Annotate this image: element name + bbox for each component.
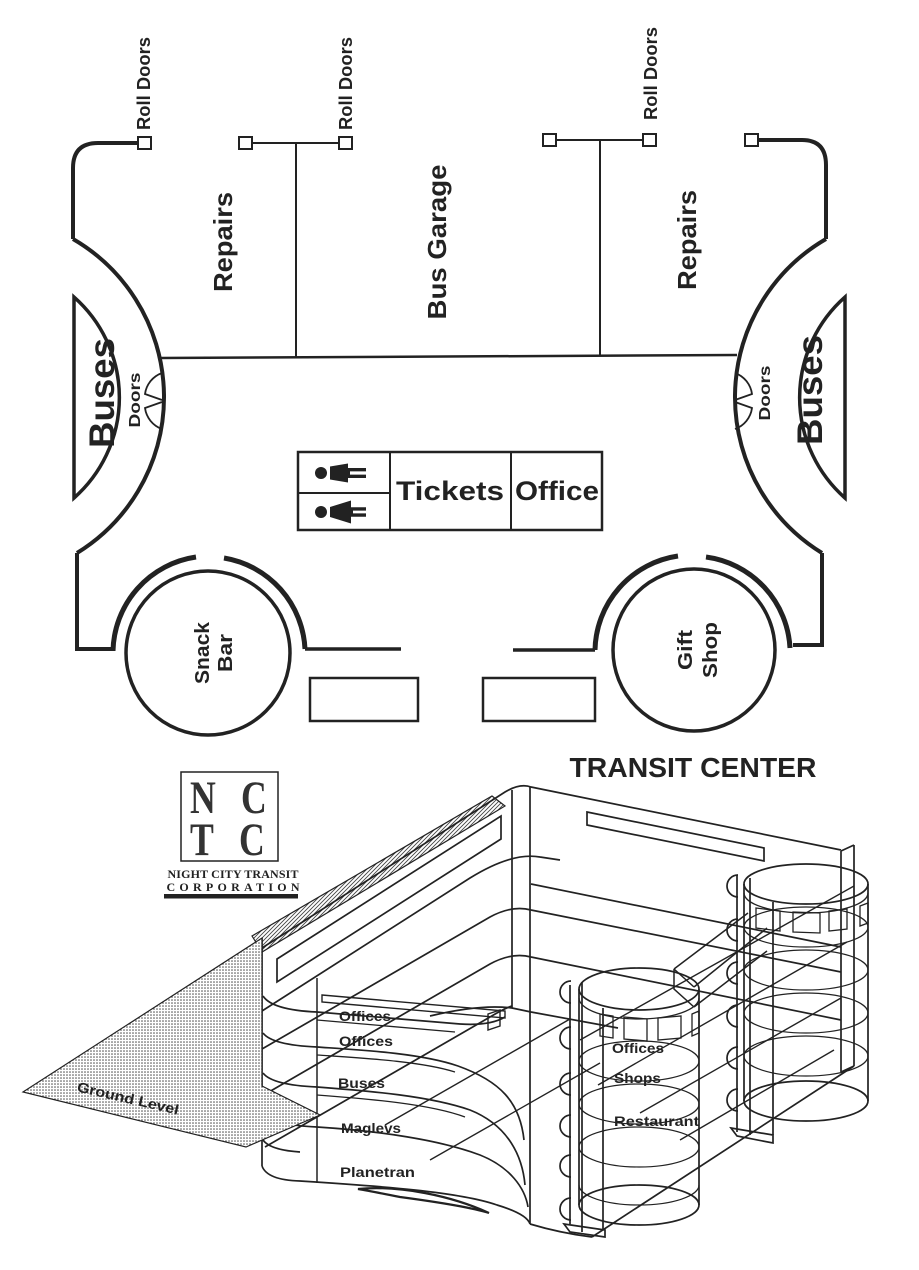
svg-text:TRANSIT CENTER: TRANSIT CENTER <box>570 752 817 783</box>
svg-text:Roll Doors: Roll Doors <box>134 37 154 130</box>
svg-text:Doors: Doors <box>127 372 144 427</box>
svg-text:Bar: Bar <box>215 634 237 672</box>
svg-text:Office: Office <box>515 476 599 506</box>
svg-text:Offices: Offices <box>339 1034 393 1049</box>
svg-text:Repairs: Repairs <box>208 192 238 292</box>
svg-text:Planetran: Planetran <box>340 1165 415 1180</box>
svg-text:Buses: Buses <box>83 338 122 448</box>
svg-text:C: C <box>239 814 265 866</box>
svg-text:Doors: Doors <box>757 365 774 420</box>
svg-text:Snack: Snack <box>192 621 214 684</box>
svg-text:Shops: Shops <box>614 1071 661 1086</box>
svg-text:Restaurant: Restaurant <box>614 1114 700 1129</box>
svg-text:Buses: Buses <box>338 1076 385 1091</box>
svg-text:Offices: Offices <box>339 1009 391 1024</box>
svg-text:CORPORATION: CORPORATION <box>167 880 300 894</box>
svg-text:Tickets: Tickets <box>396 476 504 506</box>
svg-text:Repairs: Repairs <box>672 190 702 290</box>
svg-text:Buses: Buses <box>791 335 830 445</box>
svg-text:Shop: Shop <box>700 622 722 678</box>
svg-text:Roll Doors: Roll Doors <box>641 27 661 120</box>
svg-text:Bus Garage: Bus Garage <box>422 165 452 320</box>
svg-text:NIGHT CITY TRANSIT: NIGHT CITY TRANSIT <box>168 867 299 881</box>
svg-text:Roll Doors: Roll Doors <box>336 37 356 130</box>
svg-text:Maglevs: Maglevs <box>341 1121 401 1136</box>
svg-text:Gift: Gift <box>675 630 697 670</box>
svg-text:T: T <box>190 814 214 866</box>
svg-text:Offices: Offices <box>612 1041 664 1056</box>
